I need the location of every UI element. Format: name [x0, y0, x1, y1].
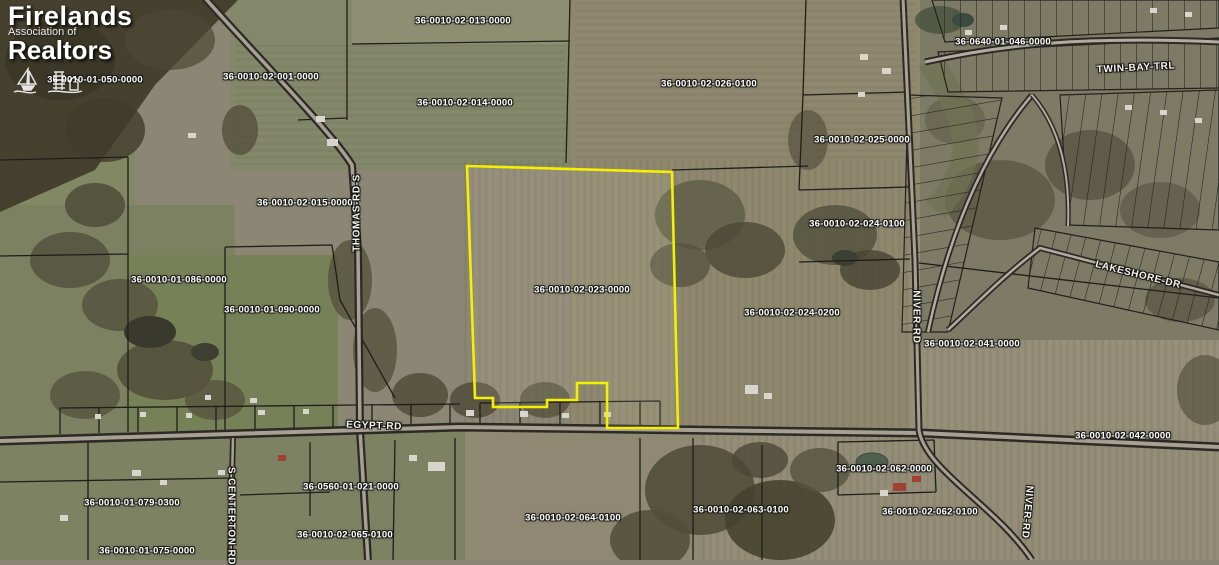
parcel-label: 36-0010-02-015-0000: [257, 198, 353, 209]
road-label: TWIN-BAY-TRL: [1097, 60, 1176, 75]
map-label-layer: 36-0010-01-050-000036-0010-02-001-000036…: [0, 0, 1219, 560]
gis-parcel-map-screenshot: { "branding": { "name": "Firelands Assoc…: [0, 0, 1219, 560]
parcel-label: 36-0010-02-013-0000: [415, 16, 511, 27]
parcel-label: 36-0010-01-086-0000: [131, 275, 227, 286]
sailboat-lighthouse-icon: [8, 64, 88, 98]
road-label: NIVER-RD: [1019, 485, 1035, 539]
parcel-label: 36-0010-02-042-0000: [1075, 431, 1171, 442]
parcel-label: 36-0640-01-046-0000: [955, 37, 1051, 48]
logo-line3: Realtors: [8, 37, 133, 64]
road-label: LAKESHORE-DR: [1094, 259, 1182, 291]
parcel-label: 36-0010-02-024-0100: [809, 219, 905, 230]
parcel-label: 36-0010-02-023-0000: [534, 285, 630, 296]
parcel-label: 36-0010-02-001-0000: [223, 72, 319, 83]
parcel-label: 36-0010-02-014-0000: [417, 98, 513, 109]
road-label: THOMAS-RD-S: [352, 174, 363, 252]
logo-line2: Association of: [8, 27, 133, 39]
parcel-label: 36-0010-02-026-0100: [661, 79, 757, 90]
parcel-label: 36-0010-01-079-0300: [84, 498, 180, 509]
road-label: EGYPT-RD: [346, 420, 402, 433]
parcel-label: 36-0010-01-090-0000: [224, 305, 320, 316]
parcel-label: 36-0010-02-062-0000: [836, 464, 932, 475]
parcel-label: 36-0010-02-062-0100: [882, 507, 978, 518]
parcel-label: 36-0010-02-041-0000: [924, 339, 1020, 350]
road-label: S-CENTERTON-RD: [226, 467, 237, 565]
parcel-label: 36-0010-02-065-0100: [297, 530, 393, 541]
realtor-association-logo: Firelands Association of Realtors: [8, 2, 133, 103]
parcel-label: 36-0560-01-021-0000: [303, 482, 399, 493]
parcel-label: 36-0010-01-075-0000: [99, 546, 195, 557]
road-label: NIVER-RD: [911, 290, 922, 343]
parcel-label: 36-0010-02-063-0100: [693, 505, 789, 516]
parcel-label: 36-0010-02-064-0100: [525, 513, 621, 524]
parcel-label: 36-0010-02-024-0200: [744, 308, 840, 319]
parcel-label: 36-0010-02-025-0000: [814, 135, 910, 146]
